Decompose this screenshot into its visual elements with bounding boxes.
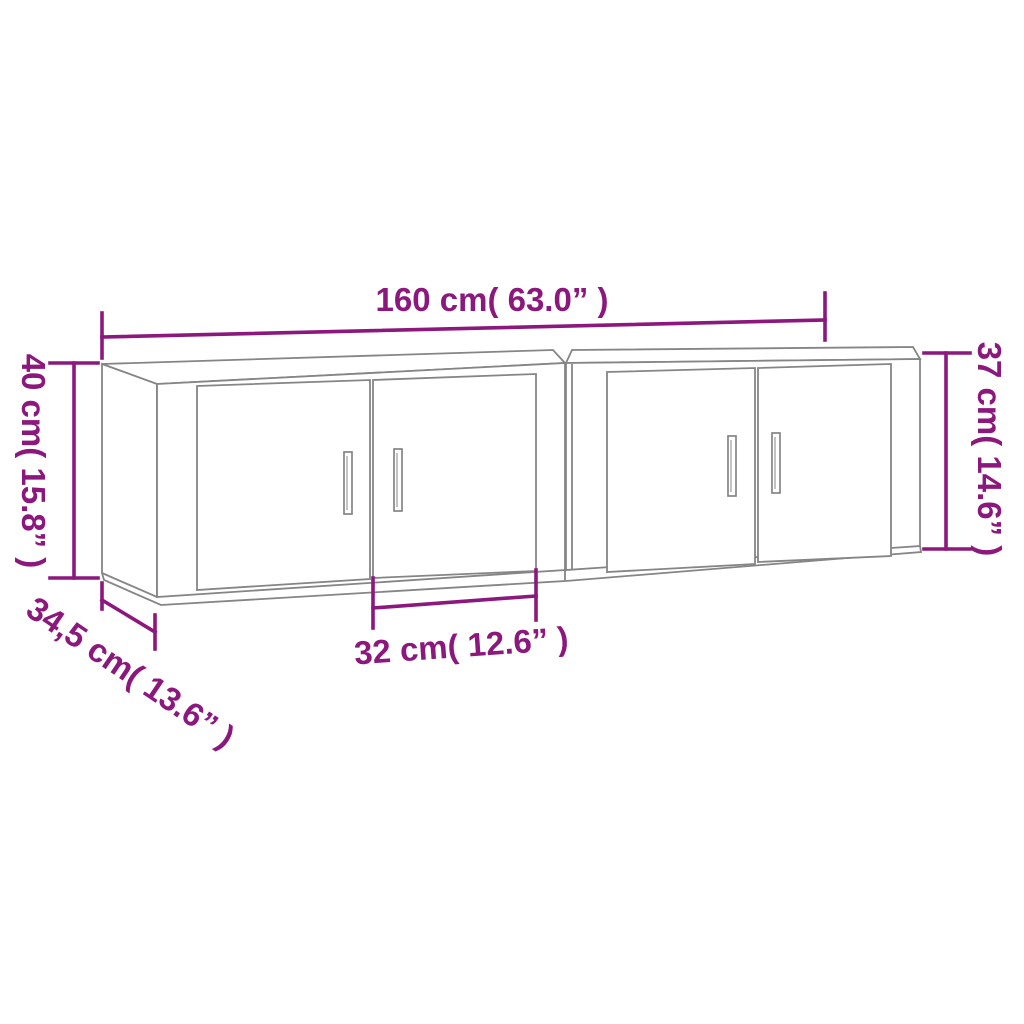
door-handle [772, 433, 780, 493]
door-handle [394, 449, 402, 511]
dimension-label-depth: 34,5 cm( 13.6” ) [20, 589, 241, 755]
dimension-label-door-width: 32 cm( 12.6” ) [353, 620, 570, 672]
dimension-label-right-height: 37 cm( 14.6” ) [971, 342, 1008, 557]
cabinet-left [102, 350, 565, 605]
door-handle [344, 452, 352, 514]
dimension-left-height: 40 cm( 15.8” ) [15, 354, 98, 578]
product-diagram-canvas: 160 cm( 63.0” ) 40 cm( 15.8” ) 37 cm( 14… [0, 0, 1024, 1024]
cabinet-left-side-panel [102, 364, 157, 597]
dimension-label-left-height: 40 cm( 15.8” ) [15, 354, 52, 569]
dimension-label-total-width: 160 cm( 63.0” ) [376, 281, 609, 318]
dimension-diagram-svg: 160 cm( 63.0” ) 40 cm( 15.8” ) 37 cm( 14… [0, 0, 1024, 1024]
dimension-total-width: 160 cm( 63.0” ) [102, 281, 825, 358]
dimension-door-width: 32 cm( 12.6” ) [353, 570, 570, 671]
door-handle [728, 436, 736, 496]
dimension-depth: 34,5 cm( 13.6” ) [20, 583, 241, 755]
dimension-right-height: 37 cm( 14.6” ) [924, 342, 1008, 557]
cabinet-right [566, 347, 921, 581]
